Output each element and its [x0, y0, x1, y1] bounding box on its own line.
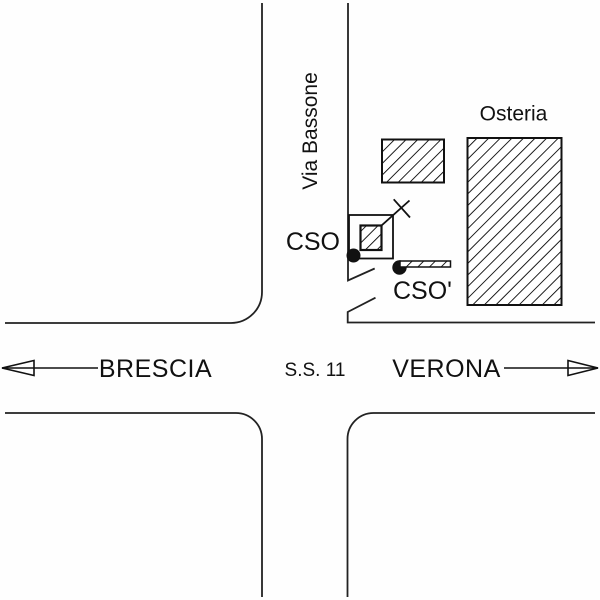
svg-text:Via Bassone: Via Bassone — [299, 72, 322, 190]
svg-text:CSO': CSO' — [393, 277, 452, 305]
svg-text:Osteria: Osteria — [480, 103, 548, 126]
svg-text:CSO: CSO — [286, 228, 340, 256]
svg-text:S.S. 11: S.S. 11 — [285, 360, 346, 381]
svg-text:VERONA: VERONA — [392, 355, 501, 383]
svg-text:BRESCIA: BRESCIA — [99, 355, 212, 383]
